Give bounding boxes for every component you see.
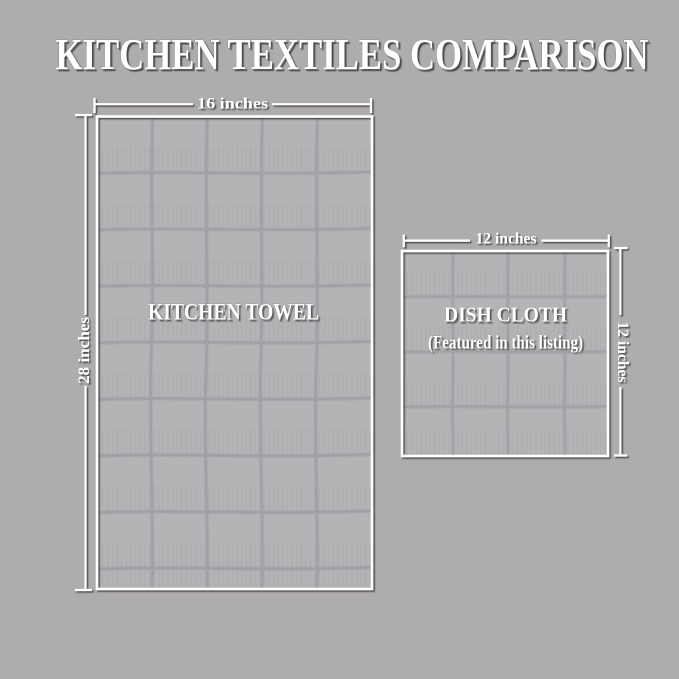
- svg-text:KITCHEN TOWEL: KITCHEN TOWEL: [148, 300, 319, 325]
- svg-text:12 inches: 12 inches: [614, 322, 631, 383]
- svg-text:12 inches: 12 inches: [476, 231, 537, 248]
- svg-text:28 inches: 28 inches: [76, 317, 93, 384]
- svg-text:DISH CLOTH: DISH CLOTH: [444, 303, 567, 327]
- svg-text:16 inches: 16 inches: [197, 96, 268, 113]
- svg-text:KITCHEN TEXTILES COMPARISON: KITCHEN TEXTILES COMPARISON: [56, 30, 649, 79]
- svg-text:(Featured in this listing): (Featured in this listing): [428, 333, 583, 353]
